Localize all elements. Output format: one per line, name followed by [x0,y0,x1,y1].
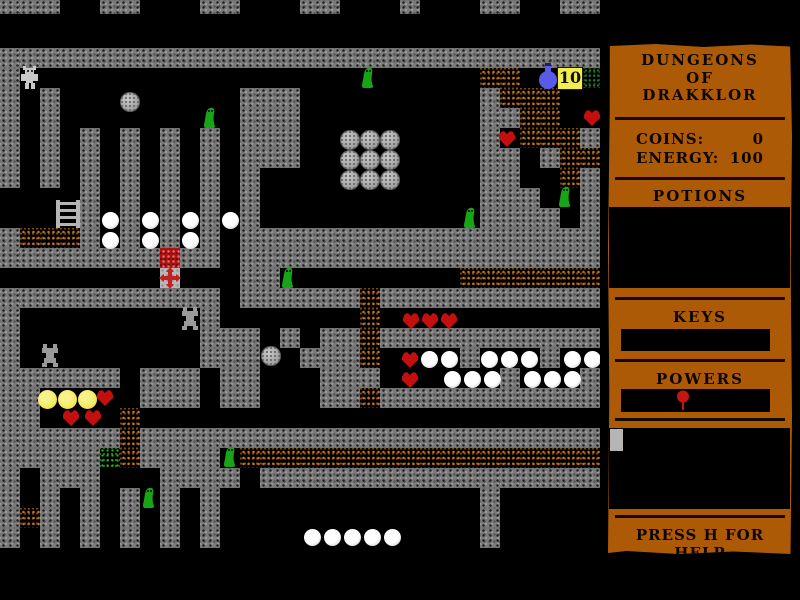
wall-tile [420,288,440,308]
heart-item [83,408,103,432]
egg-item [304,529,321,546]
wall-tile [300,428,320,448]
wall-tile [140,388,160,408]
wall-tile [180,368,200,388]
wall-tile [540,288,560,308]
wall-tile [500,428,520,448]
wall-tile [320,288,340,308]
wall-tile [240,248,260,268]
wall-tile [320,368,340,388]
wall-tile [40,488,60,508]
wall-tile [280,228,300,248]
dark-green-speckle-tile [580,68,600,88]
rubble-tile [300,448,320,468]
wall-tile [120,528,140,548]
wall-tile [0,128,20,148]
wall-tile [20,288,40,308]
game-screen[interactable]: 10 DUNGEONS OF DRAKKLOR COINS: 0 ENERGY:… [0,0,800,600]
wall-tile [240,48,260,68]
wall-tile [20,248,40,268]
wall-tile [100,428,120,448]
boulder-sprite [120,92,140,112]
wall-tile [380,328,400,348]
wall-tile [40,508,60,528]
wall-tile [380,228,400,248]
wall-tile [400,0,420,14]
wall-tile [200,468,220,488]
wall-tile [40,0,60,14]
rubble-tile [360,308,380,328]
heart-item [400,370,420,394]
rubble-tile [540,128,560,148]
divider [615,515,785,518]
wall-tile [420,428,440,448]
wall-tile [520,208,540,228]
wall-tile [120,128,140,148]
wall-tile [580,0,600,14]
rubble-tile [460,448,480,468]
wall-tile [160,208,180,228]
wall-tile [200,228,220,248]
wall-tile [420,48,440,68]
rubble-tile [380,448,400,468]
wall-tile [260,228,280,248]
rubble-tile [320,448,340,468]
wall-tile [0,308,20,328]
wall-tile [40,468,60,488]
wall-tile [0,528,20,548]
wall-tile [320,0,340,14]
energy-stat: ENERGY: 100 [636,149,764,167]
wall-tile [40,248,60,268]
rubble-tile [580,268,600,288]
wall-tile [0,168,20,188]
cursor-block [610,429,623,451]
wall-tile [160,468,180,488]
wall-tile [300,0,320,14]
wall-tile [280,48,300,68]
wall-tile [60,468,80,488]
wall-tile [160,228,180,248]
wall-tile [120,208,140,228]
wall-tile [520,388,540,408]
wall-tile [380,468,400,488]
wall-tile [20,388,40,408]
spider-sprite [39,344,61,372]
wall-tile [580,288,600,308]
coin-item [58,390,77,409]
wall-tile [480,188,500,208]
rubble-tile [480,268,500,288]
wall-tile [560,328,580,348]
coin-item [38,390,57,409]
wall-tile [220,0,240,14]
wall-tile [240,108,260,128]
wall-tile [340,348,360,368]
divider [615,297,785,300]
wall-tile [80,188,100,208]
wall-tile [360,228,380,248]
divider [615,418,785,421]
wall-tile [100,0,120,14]
wall-tile [480,248,500,268]
wall-tile [240,328,260,348]
wall-tile [120,248,140,268]
egg-item [521,351,538,368]
wall-tile [500,328,520,348]
wall-tile [80,528,100,548]
wall-tile [400,48,420,68]
wall-tile [140,368,160,388]
rubble-tile [360,328,380,348]
wall-tile [540,428,560,448]
wall-tile [160,528,180,548]
heart-item [439,311,459,335]
wall-tile [120,228,140,248]
wall-tile [0,328,20,348]
wall-tile [0,248,20,268]
wall-tile [420,228,440,248]
wall-tile [360,48,380,68]
wall-tile [500,468,520,488]
wall-tile [440,428,460,448]
wall-tile [560,228,580,248]
wall-tile [0,108,20,128]
wall-tile [500,48,520,68]
divider [615,117,785,120]
wall-tile [200,508,220,528]
potion-flask-icon [537,63,559,94]
rubble-tile [560,128,580,148]
wall-tile [520,288,540,308]
heart-item [420,311,440,335]
wall-tile [120,188,140,208]
wall-tile [160,188,180,208]
wall-tile [140,448,160,468]
wall-tile [260,268,280,288]
rubble-tile [520,448,540,468]
heart-item [61,408,81,432]
wall-tile [480,488,500,508]
wall-tile [260,128,280,148]
wall-tile [580,428,600,448]
wall-tile [40,148,60,168]
wall-tile [200,528,220,548]
game-title: DUNGEONS OF DRAKKLOR [608,52,792,105]
egg-item [324,529,341,546]
rubble-tile [480,68,500,88]
wall-tile [380,48,400,68]
wall-tile [320,228,340,248]
wall-tile [40,528,60,548]
rubble-tile [400,448,420,468]
rubble-tile [580,448,600,468]
wall-tile [520,188,540,208]
wall-tile [460,248,480,268]
wall-tile [520,328,540,348]
wall-tile [40,48,60,68]
egg-item [564,371,581,388]
wall-tile [280,108,300,128]
wall-tile [480,288,500,308]
wall-tile [480,468,500,488]
rubble-tile [360,288,380,308]
spider-sprite [179,307,201,335]
rubble-tile [280,448,300,468]
wall-tile [240,428,260,448]
wall-tile [160,388,180,408]
wall-tile [400,428,420,448]
wall-tile [200,308,220,328]
egg-item [464,371,481,388]
wall-tile [500,388,520,408]
wall-tile [80,248,100,268]
wall-tile [280,148,300,168]
wall-tile [300,228,320,248]
wall-tile [140,288,160,308]
wall-tile [320,428,340,448]
wall-tile [500,168,520,188]
wall-tile [560,428,580,448]
wall-tile [40,288,60,308]
wall-tile [120,488,140,508]
wall-tile [400,248,420,268]
red-balloon-icon [676,390,690,411]
wall-tile [460,388,480,408]
title-line-1: DUNGEONS [608,52,792,70]
wall-tile [440,388,460,408]
ladder [55,200,81,232]
wall-tile [0,448,20,468]
wall-tile [320,328,340,348]
wall-tile [480,388,500,408]
wall-tile [160,128,180,148]
wall-tile [460,328,480,348]
wall-tile [460,468,480,488]
wall-tile [580,228,600,248]
wall-tile [580,368,600,388]
wall-tile [300,48,320,68]
rubble-tile [520,128,540,148]
wall-tile [200,188,220,208]
rubble-tile [460,268,480,288]
heart-item [497,129,517,153]
egg-item [484,371,501,388]
wall-tile [0,408,20,428]
egg-item [544,371,561,388]
boulder-sprite [261,346,281,366]
green-speckle-tile [100,448,120,468]
rubble-tile [520,268,540,288]
wall-tile [580,468,600,488]
rubble-tile [120,408,140,428]
wall-tile [220,388,240,408]
wall-tile [560,288,580,308]
wall-tile [340,48,360,68]
egg-item [384,529,401,546]
wall-tile [240,348,260,368]
wall-tile [40,108,60,128]
wall-tile [540,228,560,248]
wall-tile [80,488,100,508]
wall-tile [360,368,380,388]
wall-tile [520,248,540,268]
wall-tile [280,248,300,268]
wall-tile [260,248,280,268]
wall-tile [200,208,220,228]
wall-tile [540,468,560,488]
wall-tile [500,248,520,268]
wall-tile [380,288,400,308]
wall-tile [40,128,60,148]
wall-tile [120,0,140,14]
wall-tile [540,148,560,168]
wall-tile [560,468,580,488]
wall-tile [200,328,220,348]
wall-tile [120,148,140,168]
wall-tile [520,468,540,488]
wall-tile [340,328,360,348]
wall-tile [0,488,20,508]
rubble-tile [20,508,40,528]
wall-tile [560,388,580,408]
wall-tile [500,228,520,248]
wall-tile [20,0,40,14]
potions-heading: POTIONS [608,187,792,205]
rubble-tile [580,148,600,168]
wall-tile [60,248,80,268]
wall-tile [0,368,20,388]
wall-tile [80,448,100,468]
wall-tile [320,348,340,368]
wall-tile [580,168,600,188]
wall-tile [200,248,220,268]
wall-tile [80,228,100,248]
wall-tile [0,388,20,408]
wall-tile [0,148,20,168]
wall-tile [480,208,500,228]
egg-item [102,212,119,229]
wall-tile [220,48,240,68]
wall-tile [360,248,380,268]
message-box [609,428,790,509]
wall-tile [480,48,500,68]
wall-tile [340,388,360,408]
wall-tile [400,288,420,308]
wall-tile [100,368,120,388]
rubble-tile [540,108,560,128]
wall-tile [180,468,200,488]
title-line-2: OF [608,70,792,88]
wall-tile [200,0,220,14]
boulder-sprite [360,130,380,150]
wall-tile [480,328,500,348]
wall-tile [440,228,460,248]
wall-tile [20,408,40,428]
wall-tile [580,208,600,228]
wall-tile [260,108,280,128]
wall-tile [380,428,400,448]
wall-tile [200,48,220,68]
wall-tile [580,188,600,208]
slime-sprite [360,66,376,93]
wall-tile [460,428,480,448]
rubble-tile [480,448,500,468]
wall-tile [580,248,600,268]
wall-tile [80,48,100,68]
wall-tile [520,428,540,448]
wall-tile [400,468,420,488]
boulder-sprite [360,150,380,170]
wall-tile [320,468,340,488]
egg-item [222,212,239,229]
coins-stat: COINS: 0 [636,130,764,148]
boulder-sprite [360,170,380,190]
wall-tile [540,388,560,408]
wall-tile [80,168,100,188]
coins-label: COINS: [636,130,704,148]
title-line-3: DRAKKLOR [608,87,792,105]
egg-item [364,529,381,546]
egg-item [501,351,518,368]
egg-item [344,529,361,546]
wall-tile [240,88,260,108]
wall-tile [480,0,500,14]
wall-tile [560,248,580,268]
rubble-tile [120,428,140,448]
wall-tile [100,288,120,308]
wall-tile [200,148,220,168]
wall-tile [380,388,400,408]
heart-item [401,311,421,335]
wall-tile [220,328,240,348]
egg-item [441,351,458,368]
rubble-tile [260,448,280,468]
wall-tile [480,228,500,248]
rubble-tile [540,268,560,288]
dungeon-map: 10 [0,0,600,600]
wall-tile [80,468,100,488]
egg-item [142,232,159,249]
slime-sprite [280,266,296,293]
wall-tile [160,368,180,388]
wall-tile [100,248,120,268]
wall-tile [160,508,180,528]
wall-tile [360,428,380,448]
slime-sprite [222,445,238,472]
wall-tile [200,348,220,368]
wall-tile [500,368,520,388]
wall-tile [280,128,300,148]
wall-tile [340,288,360,308]
wall-tile [260,468,280,488]
wall-tile [200,448,220,468]
wall-tile [60,48,80,68]
wall-tile [0,508,20,528]
wall-tile [180,388,200,408]
wall-tile [540,328,560,348]
wall-tile [60,448,80,468]
wall-tile [0,88,20,108]
wall-tile [320,248,340,268]
potion-count-badge: 10 [557,67,583,90]
egg-item [444,371,461,388]
wall-tile [340,248,360,268]
coin-item [78,390,97,409]
wall-tile [120,288,140,308]
rubble-tile [120,448,140,468]
rubble-tile [360,348,380,368]
